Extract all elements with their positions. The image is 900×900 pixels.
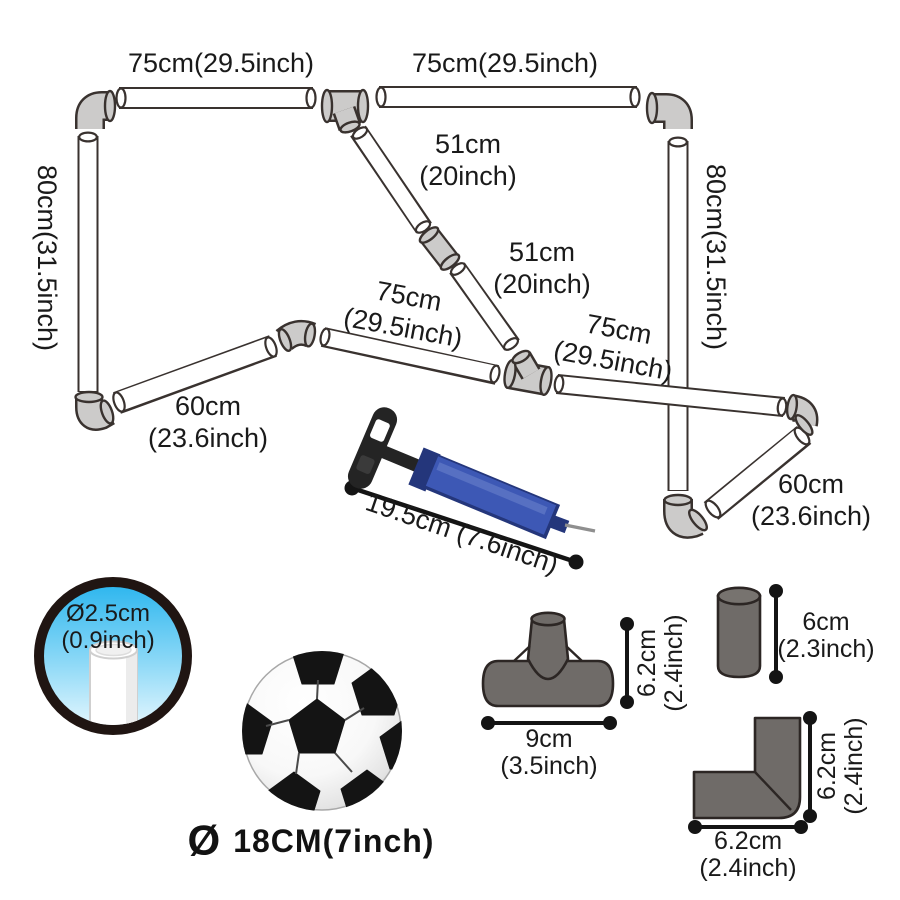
pump-needle [565, 525, 595, 531]
ground-left-label: 60cm (23.6inch) [148, 390, 268, 454]
tee-height-label: 6.2cm (2.4inch) [634, 614, 688, 711]
diagonal-pipe-upper [358, 131, 424, 228]
tee-height-dimension [620, 617, 634, 709]
crossbar-right-label: 75cm(29.5inch) [412, 47, 598, 79]
tee-width-label: 9cm (3.5inch) [500, 726, 597, 780]
product-dimension-diagram: 75cm(29.5inch) 75cm(29.5inch) 80cm(31.5i… [0, 0, 900, 900]
elbow-width-label: 6.2cm (2.4inch) [699, 828, 796, 882]
ball-diameter-label: Ø18CM(7inch) [188, 825, 435, 857]
soccer-ball [220, 633, 432, 823]
tee-connector-detail [483, 613, 613, 706]
coupler-height-label: 6cm (2.3inch) [777, 609, 874, 663]
post-left-label: 80cm(31.5inch) [31, 165, 63, 351]
diameter-symbol: Ø [188, 817, 222, 864]
ground-right-label: 60cm (23.6inch) [751, 468, 871, 532]
crossbar-left-label: 75cm(29.5inch) [128, 47, 314, 79]
diagonal-lower-label: 51cm (20inch) [493, 236, 591, 300]
coupler-detail [718, 588, 760, 677]
diagonal-upper-label: 51cm (20inch) [419, 128, 517, 192]
tube-diameter-label: Ø2.5cm (0.9inch) [61, 600, 154, 654]
elbow-height-label: 6.2cm (2.4inch) [814, 717, 868, 814]
base-pipe-right [557, 384, 784, 407]
post-right-label: 80cm(31.5inch) [700, 164, 732, 350]
elbow-detail [694, 718, 800, 818]
